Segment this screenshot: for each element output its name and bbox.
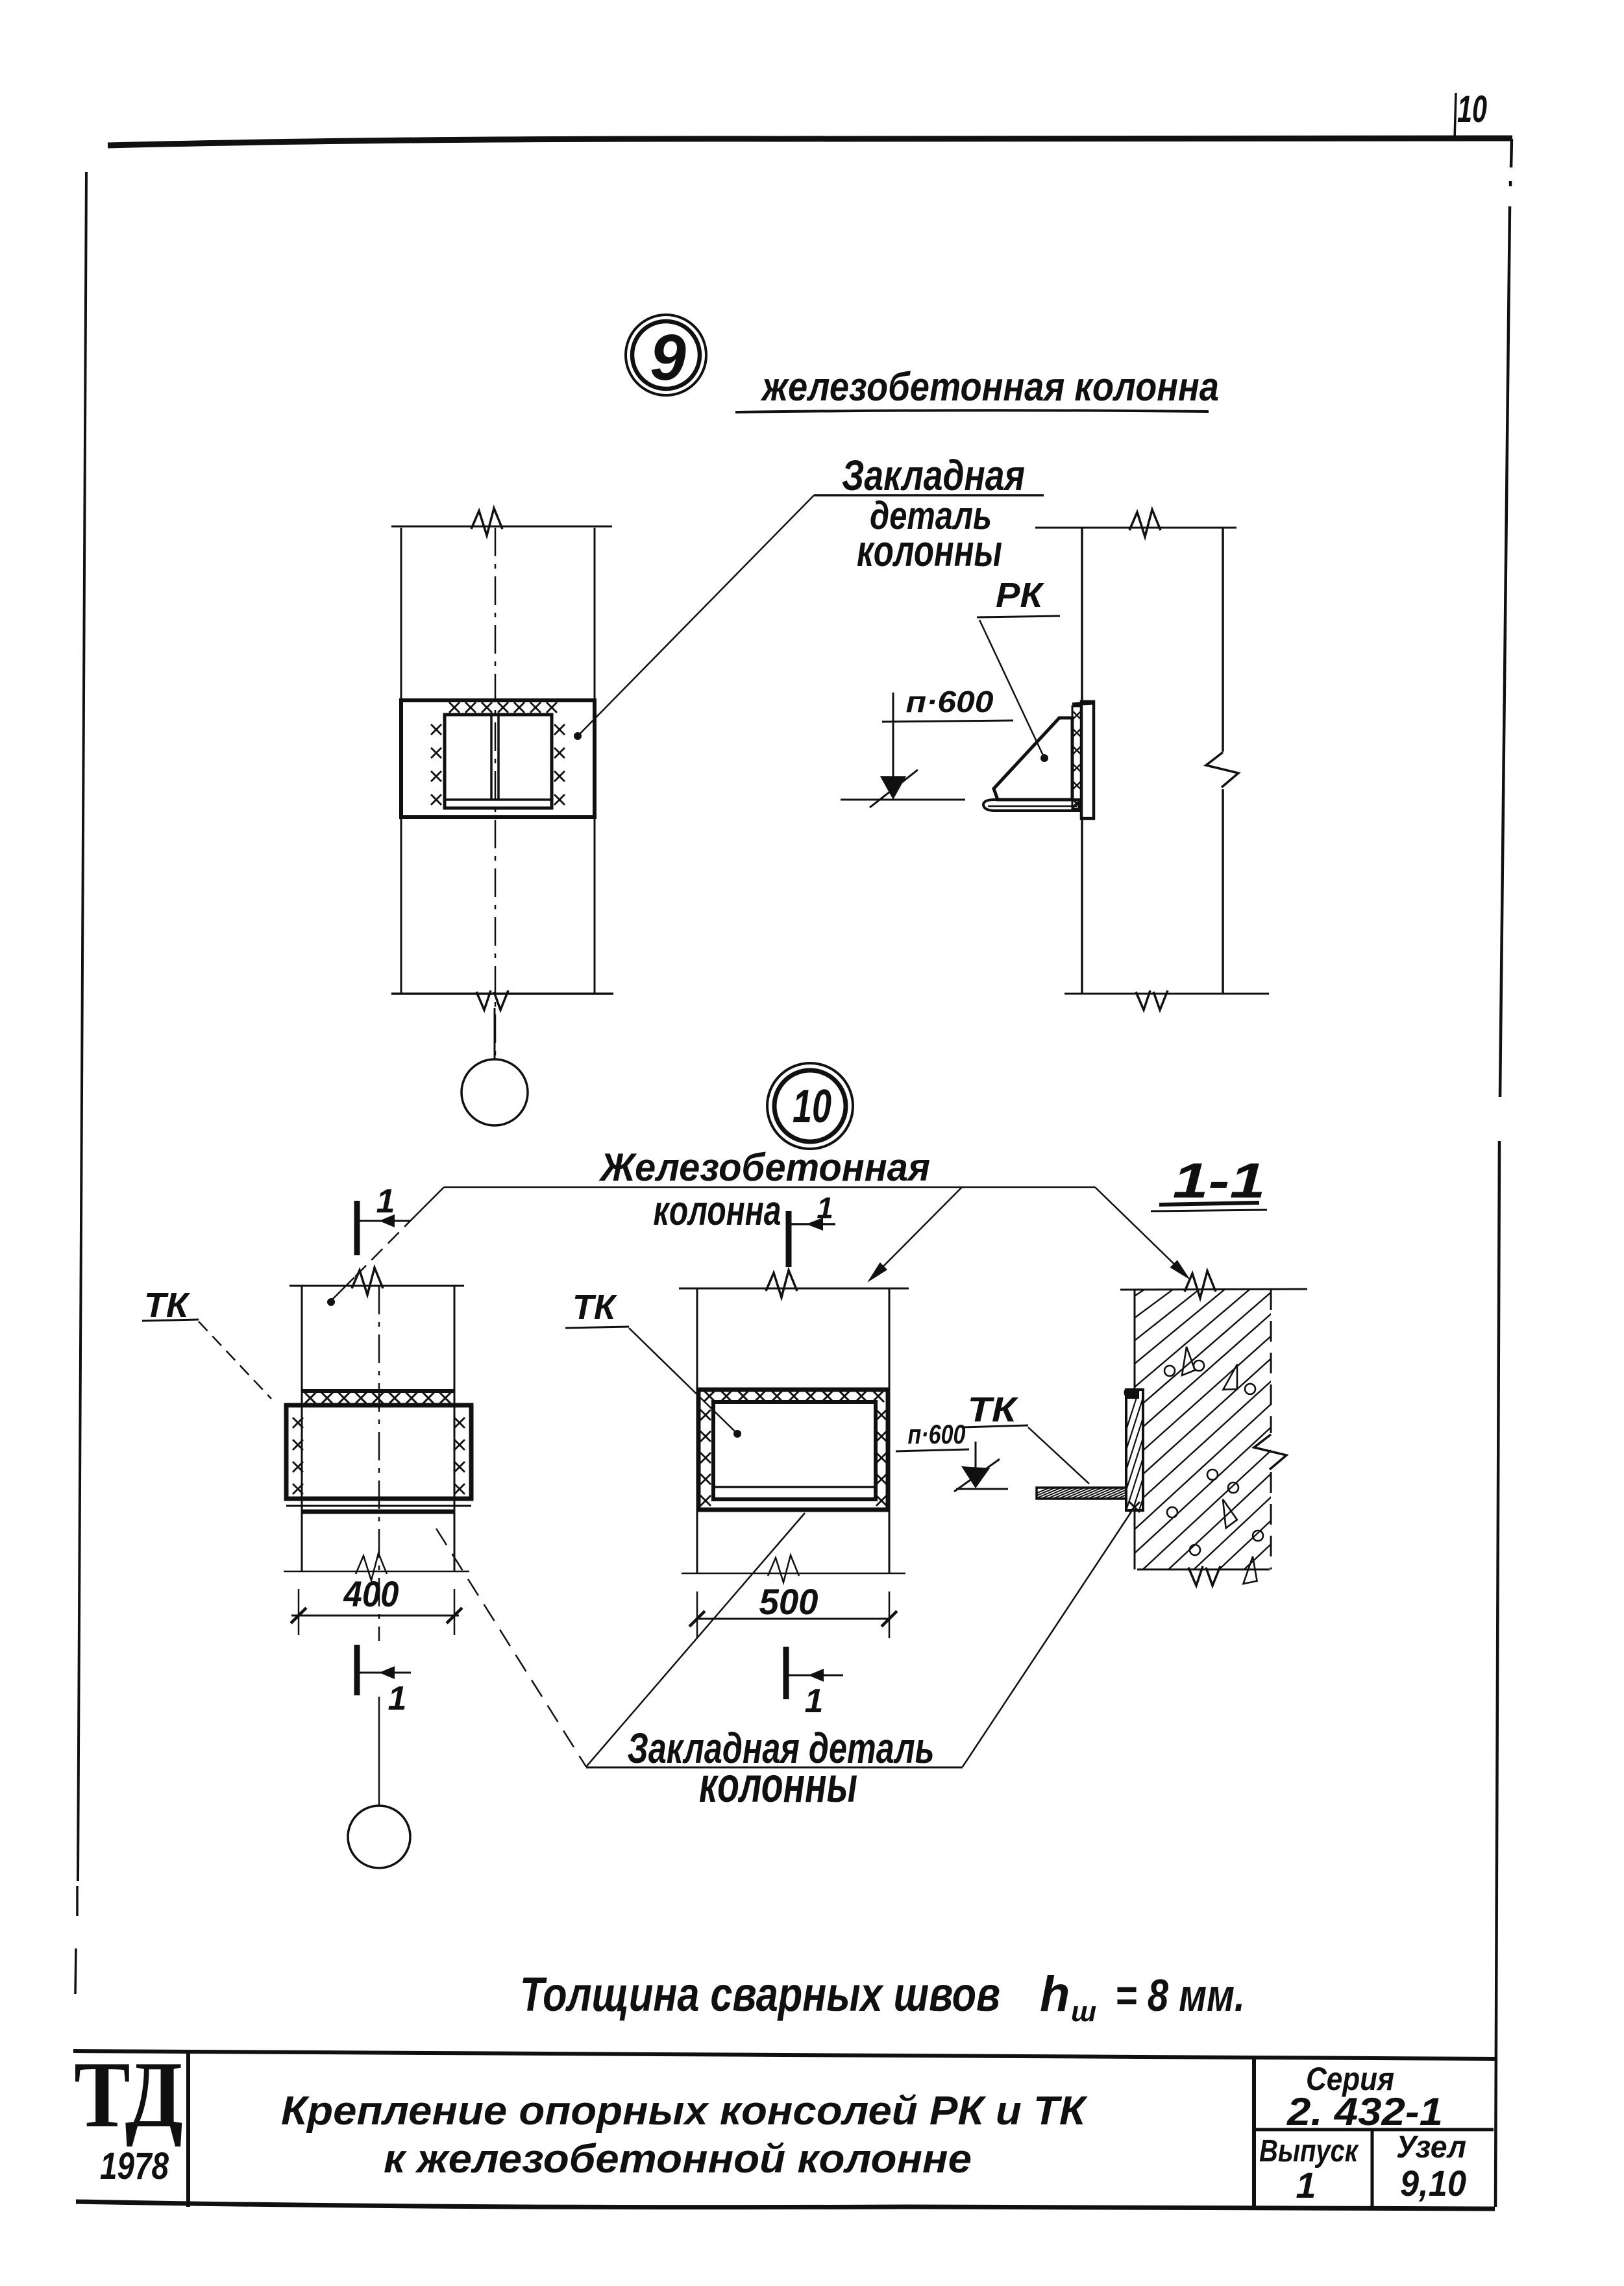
svg-text:1: 1 bbox=[817, 1191, 833, 1225]
svg-text:железобетонная колонна: железобетонная колонна bbox=[760, 365, 1219, 410]
svg-text:1-1: 1-1 bbox=[1173, 1153, 1266, 1209]
svg-text:10: 10 bbox=[793, 1081, 831, 1133]
svg-text:9: 9 bbox=[650, 321, 686, 394]
svg-text:Закладная: Закладная bbox=[842, 451, 1025, 499]
svg-text:колонны: колонны bbox=[857, 526, 1002, 576]
svg-text:Железобетонная: Железобетонная bbox=[598, 1146, 930, 1189]
svg-text:1978: 1978 bbox=[100, 2145, 169, 2187]
svg-text:РК: РК bbox=[996, 576, 1045, 615]
svg-text:колонна: колонна bbox=[654, 1187, 781, 1234]
svg-text:9,10: 9,10 bbox=[1400, 2163, 1466, 2204]
svg-text:10: 10 bbox=[1457, 88, 1487, 130]
svg-text:h: h bbox=[1040, 1967, 1070, 2022]
svg-text:Крепление опорных консолей: Крепление опорных консолей РК и ТК bbox=[281, 2089, 1088, 2133]
svg-text:п·600: п·600 bbox=[906, 685, 994, 719]
svg-text:п·600: п·600 bbox=[908, 1419, 966, 1449]
svg-text:500: 500 bbox=[759, 1581, 818, 1622]
svg-text:ТК: ТК bbox=[572, 1288, 618, 1327]
svg-text:к железобетонной колонне: к железобетонной колонне bbox=[384, 2137, 972, 2182]
svg-text:1: 1 bbox=[376, 1183, 395, 1220]
svg-text:ш: ш bbox=[1071, 1996, 1096, 2028]
svg-text:Выпуск: Выпуск bbox=[1259, 2134, 1359, 2169]
svg-text:колонны: колонны bbox=[699, 1758, 857, 1813]
svg-text:ТД: ТД bbox=[74, 2042, 183, 2147]
svg-text:Толщина сварных швов: Толщина сварных швов bbox=[520, 1967, 1000, 2021]
svg-text:1: 1 bbox=[1296, 2165, 1316, 2206]
svg-text:ТК: ТК bbox=[144, 1286, 191, 1325]
svg-text:= 8 мм.: = 8 мм. bbox=[1115, 1970, 1245, 2021]
svg-text:2. 432-1: 2. 432-1 bbox=[1286, 2090, 1443, 2133]
svg-text:1: 1 bbox=[388, 1680, 407, 1717]
svg-text:ТК: ТК bbox=[968, 1390, 1019, 1429]
svg-text:Узел: Узел bbox=[1396, 2130, 1466, 2165]
svg-text:400: 400 bbox=[343, 1573, 399, 1614]
svg-text:1: 1 bbox=[805, 1682, 824, 1720]
